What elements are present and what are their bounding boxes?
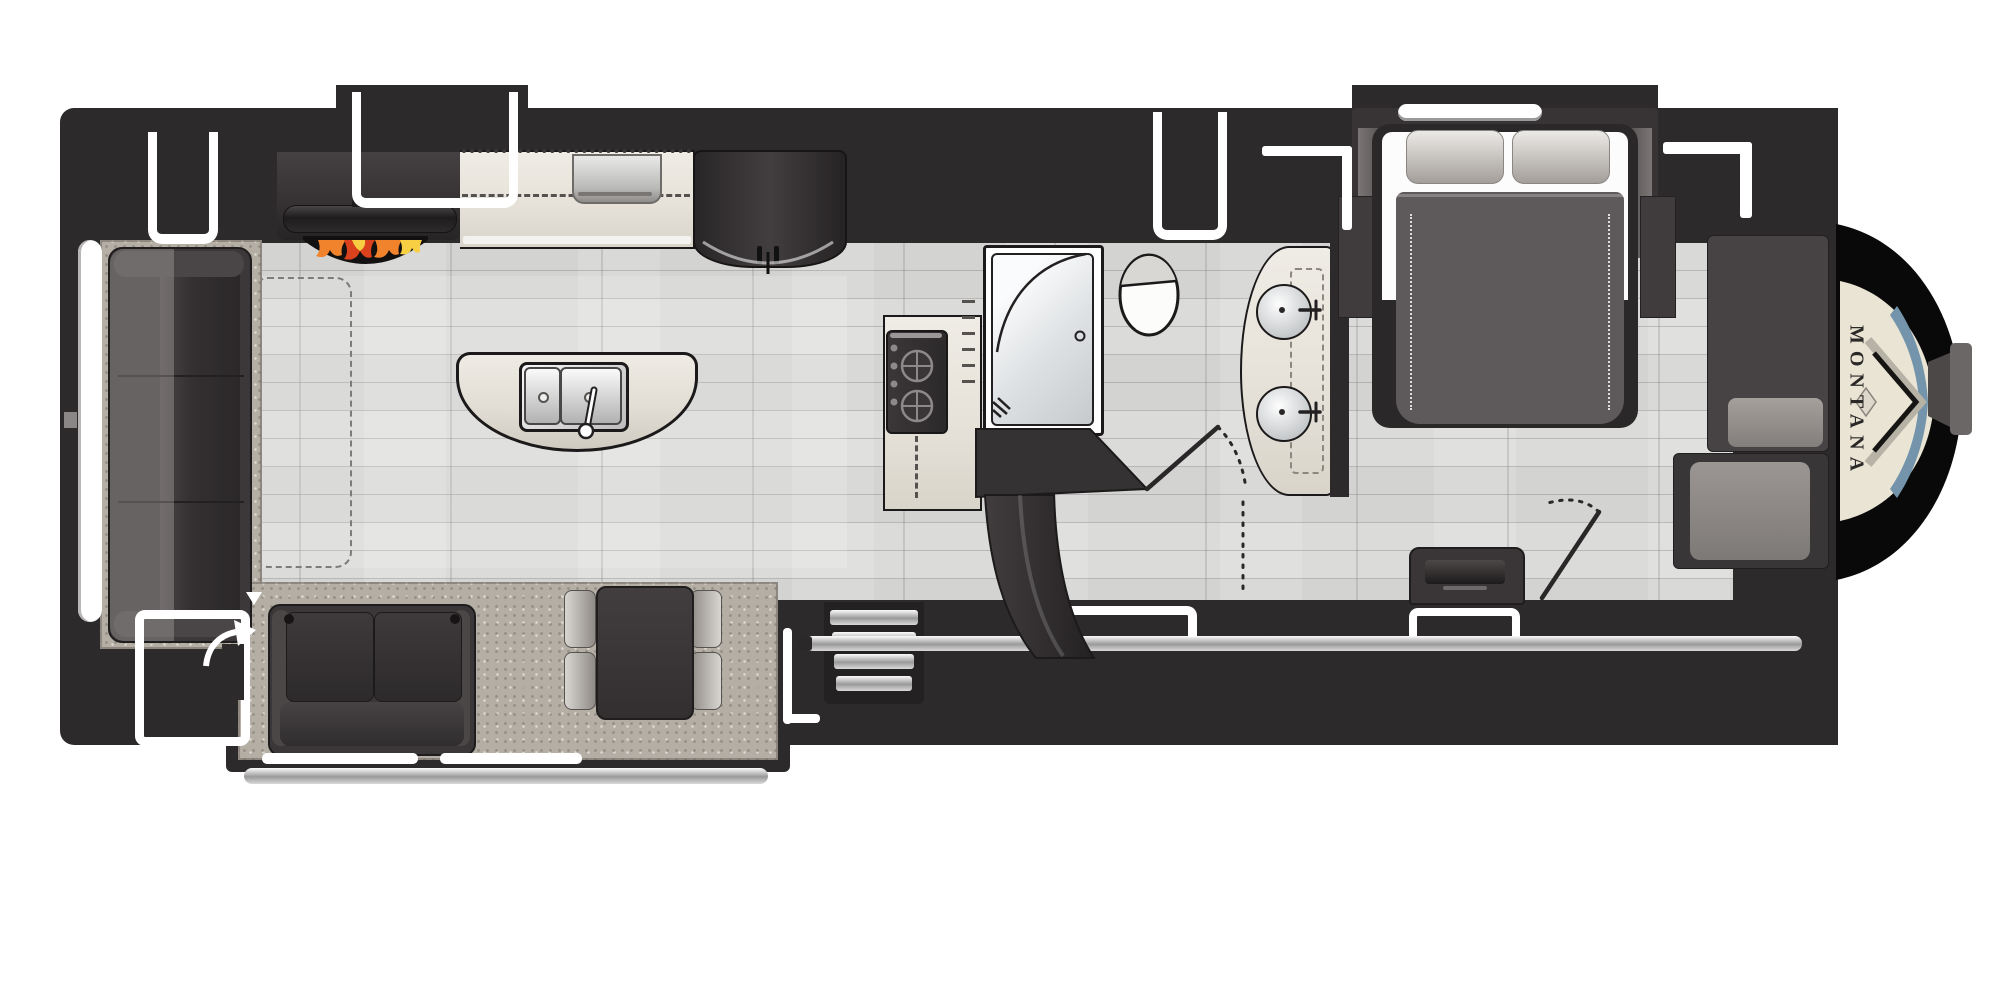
- wardrobe-closet-interior: [1690, 462, 1810, 560]
- pillow-right: [1512, 130, 1610, 184]
- dinette-chair-top-left: [564, 590, 596, 648]
- awning-rail-end-cap: [799, 637, 812, 650]
- loveseat-button-right: [450, 614, 460, 624]
- entry-door-frame-gap: [222, 644, 244, 700]
- blanket-stitch-left: [1410, 214, 1412, 410]
- window-front-side-bar: [1740, 142, 1752, 218]
- towel-bar: [962, 300, 975, 396]
- slide-bracket-vertical: [783, 628, 792, 724]
- awning-rail-main: [806, 636, 1802, 651]
- rear-window-strip: [78, 240, 102, 622]
- bed-slide-edge-vertical: [1342, 146, 1352, 230]
- window-bottom-wall: [1033, 606, 1197, 637]
- sink-drain-right: [584, 392, 595, 403]
- tv: [283, 205, 457, 233]
- range-cooktop: [886, 330, 948, 434]
- window-dresser-wall: [1409, 608, 1520, 636]
- rear-bumper-detail: [64, 412, 77, 428]
- dresser-tv-screen: [1425, 560, 1505, 584]
- counter-front-edge: [463, 236, 691, 244]
- shower-pan: [991, 253, 1094, 426]
- loveseat-button-left: [284, 614, 294, 624]
- window-rear-left: [148, 132, 218, 244]
- window-hall: [1153, 112, 1227, 240]
- pillow-left: [1406, 130, 1504, 184]
- refrigerator: [693, 150, 847, 268]
- step-tread-4: [836, 676, 912, 691]
- awning-rail-living-slide: [244, 768, 768, 784]
- blanket-stitch-right: [1608, 214, 1610, 410]
- slide-bracket-horizontal: [783, 714, 820, 723]
- bed-slide-edge-horizontal: [1262, 146, 1352, 156]
- entry-steps: [824, 602, 924, 704]
- range-counter-dash: [915, 436, 918, 498]
- rear-sofa: [108, 247, 252, 643]
- step-tread-3: [834, 654, 914, 669]
- loveseat-cushion-right: [374, 612, 462, 702]
- rv-floorplan: MONTANA: [0, 0, 2000, 993]
- vanity-sink-top-drain: [1279, 307, 1285, 313]
- dinette-chair-bottom-right: [690, 652, 722, 710]
- nightstand-right: [1640, 196, 1676, 318]
- loveseat-cushion-left: [286, 612, 374, 702]
- sink-drain-left: [538, 392, 549, 403]
- loveseat: [268, 604, 476, 756]
- brand-logo-text: MONTANA: [1836, 300, 1876, 504]
- hitch-pin: [1928, 343, 1972, 435]
- dinette-table: [596, 586, 694, 720]
- blanket-fold-highlight: [1396, 194, 1624, 197]
- loveseat-backrest: [280, 702, 464, 746]
- rear-sofa-hideabed-overlay: [110, 249, 174, 641]
- vanity-sink-bottom-drain: [1279, 409, 1285, 415]
- step-tread-1: [830, 610, 918, 625]
- dinette-chair-top-right: [690, 590, 722, 648]
- window-front-top-bar: [1663, 142, 1752, 154]
- microwave: [572, 154, 662, 204]
- refrigerator-handle-left: [757, 246, 762, 264]
- window-bed-slide-top: [1398, 104, 1542, 121]
- microwave-handle: [578, 192, 652, 196]
- front-closet-upper-shelf: [1728, 398, 1823, 447]
- bed-blanket: [1396, 192, 1624, 424]
- sofa-bed-option-outline: [252, 277, 352, 568]
- slide-rail-white-right: [440, 753, 582, 764]
- dinette-chair-bottom-left: [564, 652, 596, 710]
- window-kitchen-slide: [352, 92, 518, 208]
- slide-rail-white-left: [262, 753, 418, 764]
- dresser-tv-stand-line: [1443, 586, 1487, 590]
- refrigerator-handle-right: [774, 246, 779, 264]
